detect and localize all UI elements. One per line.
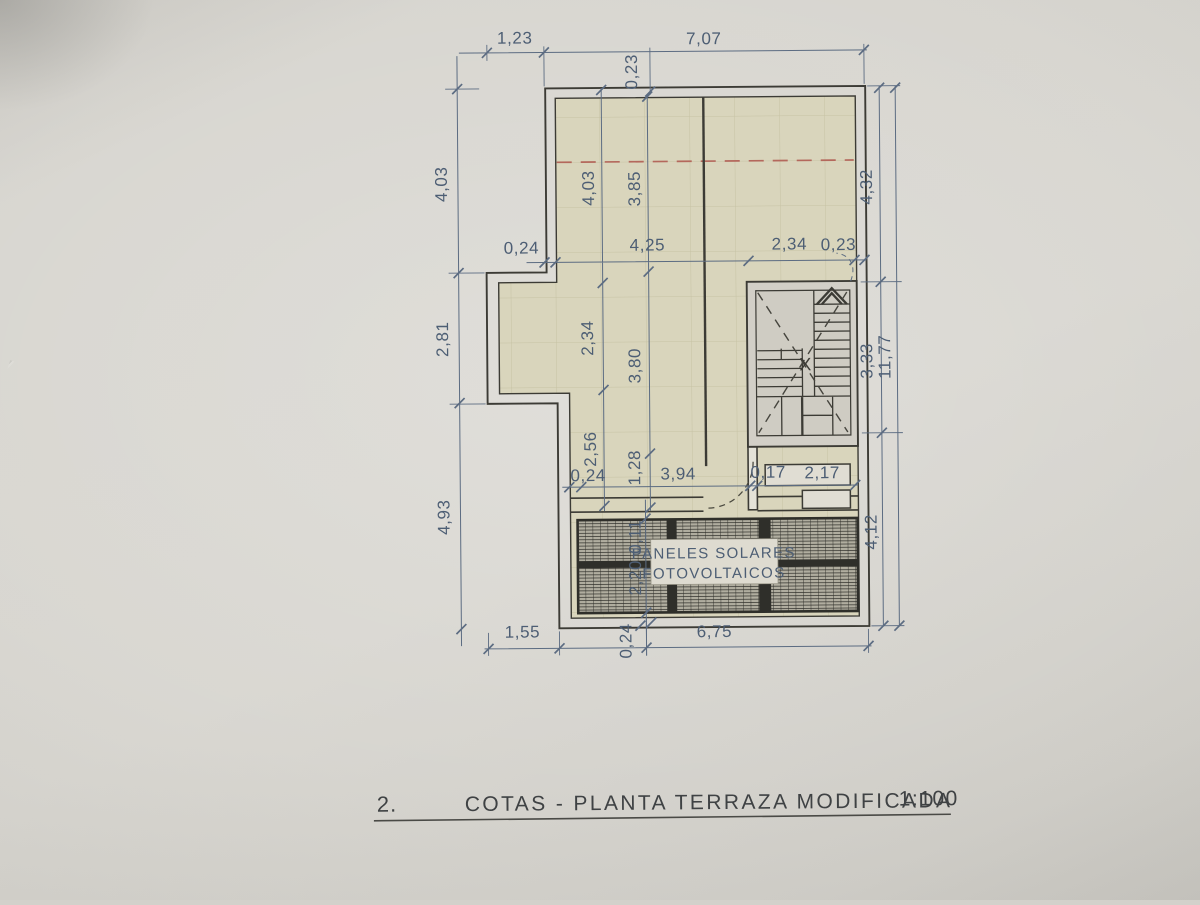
- dim-top-main: 7,07: [686, 29, 722, 48]
- drawing-title: COTAS - PLANTA TERRAZA MODIFICADA: [465, 789, 953, 816]
- drawing-scale: 1:100: [899, 787, 959, 810]
- dim-int-upper-b: 3,85: [625, 171, 644, 207]
- dim-int-upper-a: 4,03: [579, 170, 598, 206]
- dim-low-right: 2,17: [804, 463, 840, 482]
- dim-int-low-b: 1,28: [625, 450, 644, 486]
- title-underline: [374, 814, 951, 821]
- stairwell: X: [747, 281, 858, 447]
- solar-label-line1: PANELES SOLARES: [632, 544, 796, 562]
- equipment-box-2: [802, 490, 850, 508]
- drawing-sheet: X PANELES SOLARES FOTOVOLTAICOS 1,23 7,0…: [0, 0, 1200, 905]
- dim-right-stair: 3,33: [857, 343, 876, 379]
- dim-panel-height: 2,20: [626, 560, 645, 596]
- title-block: 2. COTAS - PLANTA TERRAZA MODIFICADA 1:1…: [374, 787, 959, 821]
- dim-right-upper: 4,32: [857, 169, 876, 205]
- title-index: 2.: [377, 792, 398, 817]
- stair-cross-label: X: [799, 354, 811, 374]
- dim-left-lower: 4,93: [434, 499, 453, 535]
- dim-low-wall: 0,24: [570, 466, 606, 485]
- dim-top-left: 1,23: [497, 29, 533, 48]
- dim-left-mid: 2,81: [433, 321, 452, 357]
- dim-mid-wall-right: 0,23: [821, 235, 857, 254]
- dim-low-gap: 0,17: [750, 463, 786, 482]
- dim-top-wall: 0,23: [622, 54, 641, 90]
- solar-panel-array: PANELES SOLARES FOTOVOLTAICOS: [578, 518, 859, 613]
- dim-low-span: 3,94: [660, 464, 696, 483]
- dim-mid-stair: 2,34: [772, 234, 808, 253]
- dim-left-upper: 4,03: [432, 166, 451, 202]
- dim-mid-wall: 0,24: [504, 238, 540, 257]
- building: X PANELES SOLARES FOTOVOLTAICOS: [485, 86, 869, 629]
- dim-bottom-main: 6,75: [697, 622, 733, 641]
- dim-right-total: 11,77: [875, 335, 894, 379]
- dim-mid-span: 4,25: [630, 235, 666, 254]
- solar-label-line2: FOTOVOLTAICOS: [642, 565, 785, 583]
- dim-int-mid-a: 2,34: [578, 320, 597, 356]
- floor-plan-drawing: X PANELES SOLARES FOTOVOLTAICOS 1,23 7,0…: [0, 0, 1200, 905]
- dim-right-lower: 4,12: [862, 514, 881, 550]
- dim-int-low-a: 2,56: [581, 431, 600, 467]
- dim-int-mid-b: 3,80: [625, 348, 644, 384]
- dim-panel-gap: 0,11: [626, 520, 645, 554]
- dim-bottom-left: 1,55: [505, 622, 541, 641]
- dim-bottom-wall: 0,24: [616, 623, 635, 659]
